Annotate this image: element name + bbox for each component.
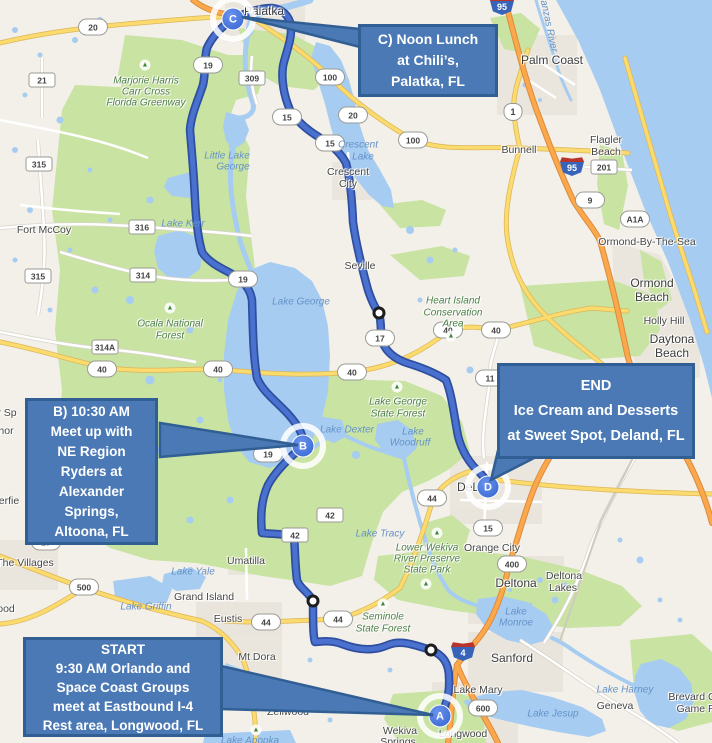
callout-line: Springs,: [28, 502, 155, 522]
callout-line: Altoona, FL: [28, 522, 155, 542]
route-marker-c[interactable]: C: [222, 8, 245, 31]
route-marker-a[interactable]: A: [429, 705, 452, 728]
route-marker-b[interactable]: B: [292, 435, 315, 458]
route-waypoint-dot[interactable]: [425, 644, 438, 657]
callout-line: Space Coast Groups: [26, 678, 220, 697]
callout-line: meet at Eastbound I-4: [26, 697, 220, 716]
callout-line: START: [26, 640, 220, 659]
map-canvas[interactable]: PalatkaPalm CoastBunnellFlaglerBeachFort…: [0, 0, 712, 743]
callout-line: Meet up with: [28, 422, 155, 442]
callout-line: Alexander: [28, 482, 155, 502]
callout-line: at Sweet Spot, Deland, FL: [500, 424, 692, 449]
callout-line: END: [500, 374, 692, 399]
callout-noon-lunch: C) Noon Lunch at Chili’s, Palatka, FL: [358, 24, 498, 97]
callout-line: NE Region: [28, 442, 155, 462]
callout-line: B) 10:30 AM: [28, 402, 155, 422]
callout-line: C) Noon Lunch: [361, 29, 495, 50]
callout-start: START 9:30 AM Orlando and Space Coast Gr…: [23, 637, 223, 737]
callout-line: 9:30 AM Orlando and: [26, 659, 220, 678]
callout-line: at Chili’s,: [361, 50, 495, 71]
callout-end: END Ice Cream and Desserts at Sweet Spot…: [497, 363, 695, 459]
route-waypoint-dot[interactable]: [307, 595, 320, 608]
callout-line: Palatka, FL: [361, 71, 495, 92]
callout-meetup: B) 10:30 AM Meet up with NE Region Ryder…: [25, 398, 158, 545]
route-marker-d[interactable]: D: [477, 476, 500, 499]
callout-line: Ice Cream and Desserts: [500, 399, 692, 424]
route-waypoint-dot[interactable]: [373, 307, 386, 320]
callout-line: Ryders at: [28, 462, 155, 482]
callout-line: Rest area, Longwood, FL: [26, 716, 220, 735]
